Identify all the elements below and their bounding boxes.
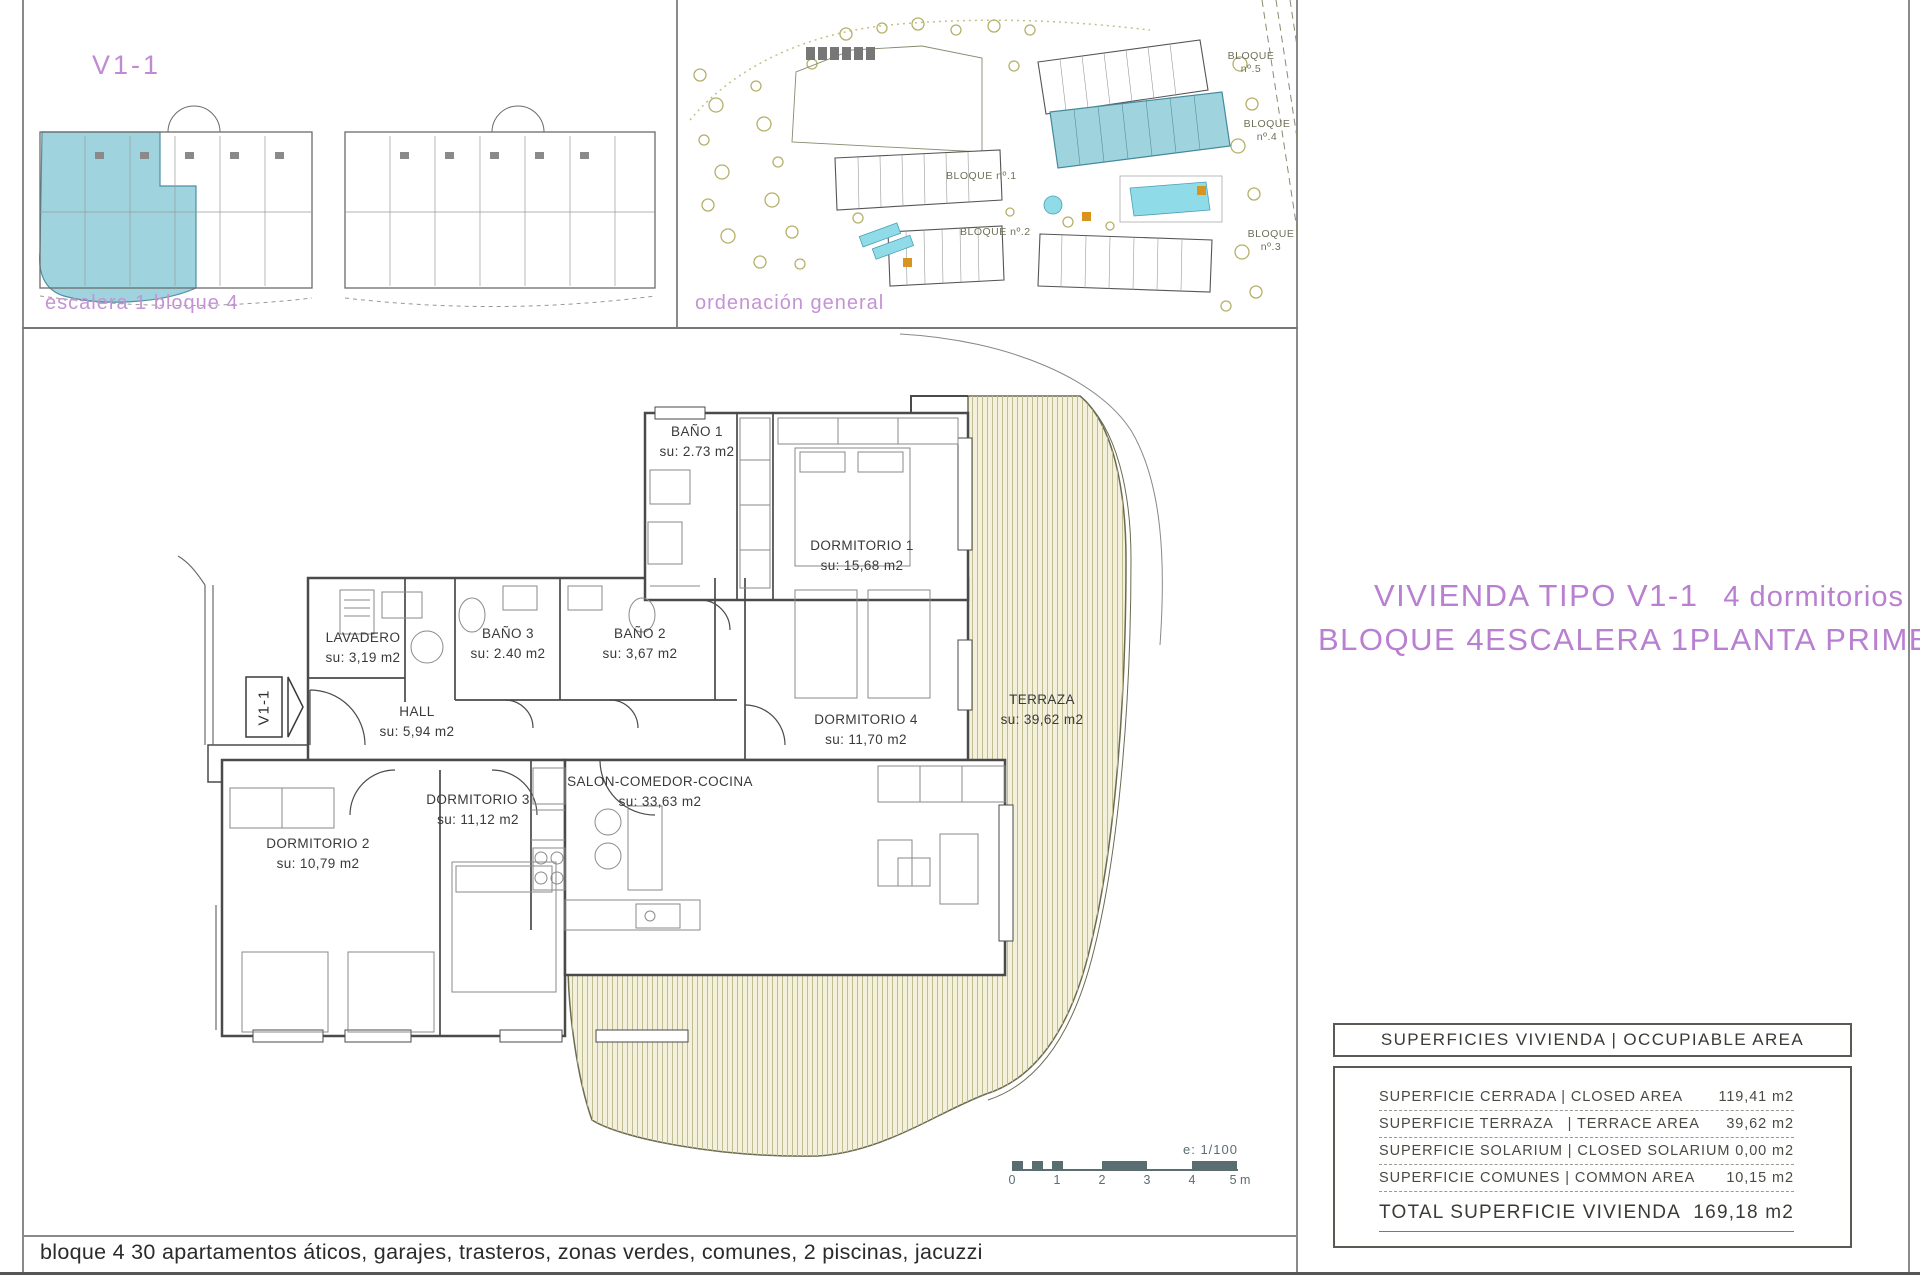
room-label-terraza: TERRAZA su: 39,62 m2	[1001, 690, 1084, 729]
page-bottom-border	[0, 1272, 1920, 1275]
room-label-dormitorio-4: DORMITORIO 4 su: 11,70 m2	[814, 710, 918, 749]
room-label-bano-1: BAÑO 1 su: 2.73 m2	[660, 422, 735, 461]
site-block-1-label: BLOQUE nº.1	[946, 170, 1017, 183]
site-block-4-label: BLOQUE nº.4	[1238, 118, 1296, 144]
bedrooms-count-title: 4 dormitorios	[1723, 581, 1904, 614]
scale-bar-graphic	[1012, 1161, 1238, 1171]
locator-caption: escalera 1 bloque 4	[45, 292, 239, 315]
unit-tag-arrow-icon	[288, 677, 303, 737]
room-label-lavadero: LAVADERO su: 3,19 m2	[326, 628, 401, 667]
room-label-dormitorio-1: DORMITORIO 1 su: 15,68 m2	[810, 536, 914, 575]
floor-plan-unit-tag: V1-1	[246, 677, 282, 737]
site-plan-caption: ordenación general	[695, 292, 884, 315]
stair-title: ESCALERA 1	[1485, 622, 1690, 658]
table-row-total: TOTAL SUPERFICIE VIVIENDA 169,18 m2	[1379, 1202, 1794, 1232]
sheet-title-block: VIVIENDA TIPO V1-1 4 dormitorios BLOQUE …	[1318, 578, 1904, 658]
room-label-bano-3: BAÑO 3 su: 2.40 m2	[471, 624, 546, 663]
table-row-closed-area: SUPERFICIE CERRADA | CLOSED AREA 119,41 …	[1379, 1084, 1794, 1111]
room-label-salon-comedor-cocina: SALON-COMEDOR-COCINA su: 33,63 m2	[567, 772, 753, 811]
room-label-bano-2: BAÑO 2 su: 3,67 m2	[603, 624, 678, 663]
round-pool-icon	[1044, 196, 1062, 214]
dwelling-type-title: VIVIENDA TIPO V1-1	[1374, 578, 1698, 614]
site-plan-drawing	[677, 0, 1298, 328]
table-row-common-area: SUPERFICIE COMUNES | COMMON AREA 10,15 m…	[1379, 1165, 1794, 1192]
site-block-3-label: BLOQUE nº.3	[1246, 228, 1296, 254]
table-row-solarium-area: SUPERFICIE SOLARIUM | CLOSED SOLARIUM 0,…	[1379, 1138, 1794, 1165]
scale-bar: e: 1/100 0 1 2 3 4 5 m	[1012, 1142, 1238, 1187]
unit-tag-text: V1-1	[256, 689, 273, 725]
room-label-dormitorio-3: DORMITORIO 3 su: 11,12 m2	[426, 790, 530, 829]
plan-sheet: V1-1 escalera 1 bloque 4	[0, 0, 1920, 1280]
scale-ratio-label: e: 1/100	[1012, 1142, 1238, 1157]
room-label-hall: HALL su: 5,94 m2	[380, 702, 455, 741]
scale-bar-ticks: 0 1 2 3 4 5 m	[1012, 1171, 1238, 1187]
site-block-5-label: BLOQUE nº.5	[1222, 50, 1280, 76]
room-label-dormitorio-2: DORMITORIO 2 su: 10,79 m2	[266, 834, 370, 873]
floor-title: PLANTA PRIMERA	[1690, 622, 1920, 658]
site-block-2-label: BLOQUE nº.2	[960, 226, 1031, 239]
sheet-description: bloque 4 30 apartamentos áticos, garajes…	[40, 1240, 983, 1265]
areas-table: SUPERFICIE CERRADA | CLOSED AREA 119,41 …	[1333, 1066, 1852, 1248]
table-row-terrace-area: SUPERFICIE TERRAZA | TERRACE AREA 39,62 …	[1379, 1111, 1794, 1138]
building-elevation-drawing	[23, 0, 677, 328]
areas-table-header: SUPERFICIES VIVIENDA | OCCUPIABLE AREA	[1333, 1023, 1852, 1057]
block-title: BLOQUE 4	[1318, 622, 1485, 658]
